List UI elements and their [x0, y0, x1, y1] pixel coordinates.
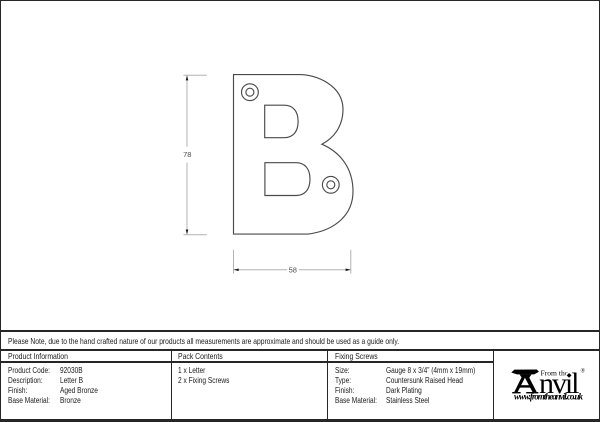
- svg-text:®: ®: [581, 368, 586, 375]
- svg-text:78: 78: [183, 150, 191, 159]
- svg-text:58: 58: [289, 265, 297, 274]
- svg-text:www.fromtheanvil.co.uk: www.fromtheanvil.co.uk: [514, 392, 584, 402]
